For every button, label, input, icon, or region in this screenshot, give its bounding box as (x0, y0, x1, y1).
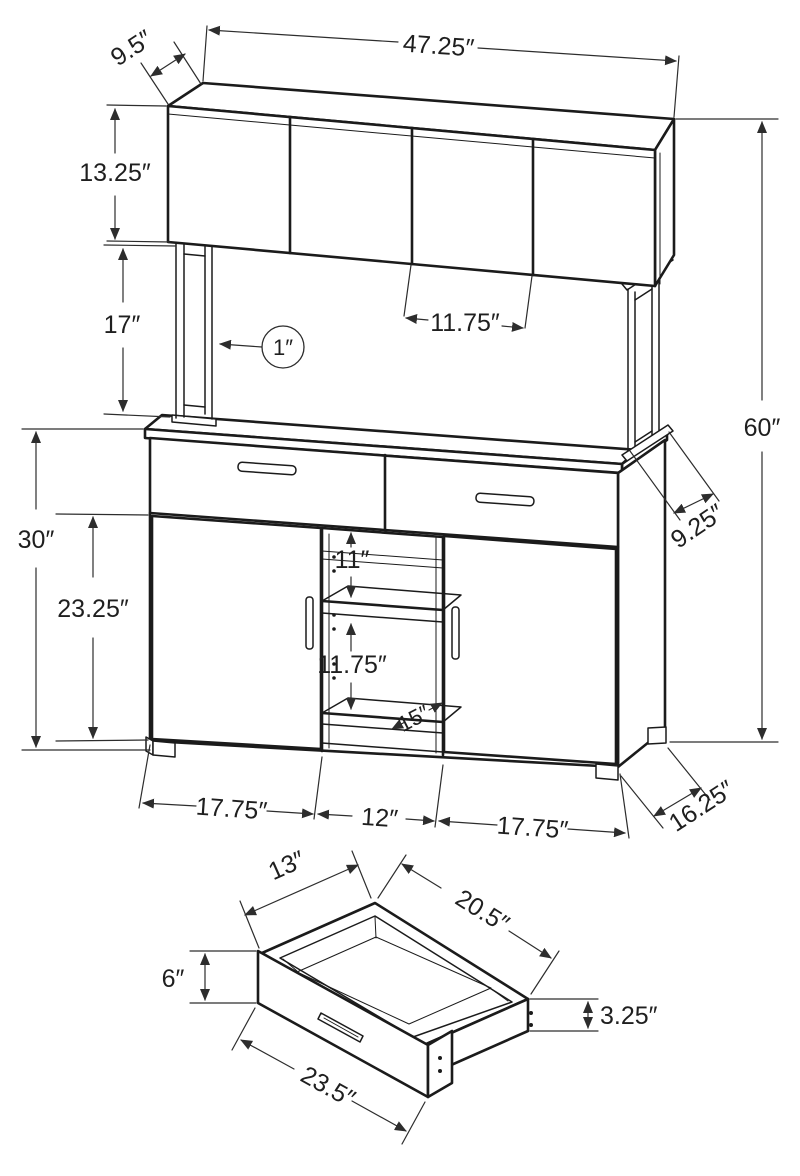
dim-drawer-box-height-label: 3.25″ (600, 1002, 658, 1030)
dim-drawer-front-width-label: 23.5″ (296, 1061, 360, 1113)
dim-base-depth: 16.25″ (621, 748, 739, 837)
dim-hutch-height: 13.25″ (79, 105, 170, 242)
furniture-dimension-diagram: 9.5″ 47.25″ 13.25″ 17″ (0, 0, 800, 1176)
dim-base-height-label: 30″ (18, 526, 55, 554)
dim-center-section-width-label: 12″ (360, 803, 399, 833)
left-riser-frame (172, 243, 216, 426)
dim-overall-width-label: 47.25″ (402, 30, 475, 63)
hutch (168, 83, 674, 286)
dim-right-section-width-label: 17.75″ (496, 812, 569, 845)
dim-overall-height-label: 60″ (744, 414, 781, 442)
dim-drawer-front-height-label: 6″ (162, 965, 185, 993)
dim-drawer-interior-width-label: 20.5″ (450, 884, 514, 938)
dim-door-height: 23.25″ (56, 514, 148, 741)
right-door-handle (452, 607, 459, 659)
dim-riser-depth-label: 9.25″ (666, 499, 729, 554)
dim-riser-height-label: 17″ (104, 311, 141, 339)
dim-door-height-label: 23.25″ (57, 595, 129, 623)
dim-drawer-interior-depth-label: 13″ (264, 845, 309, 886)
dim-riser-height: 17″ (104, 245, 176, 417)
dim-drawer-box-height: 3.25″ (530, 999, 658, 1031)
dim-hutch-height-label: 13.25″ (79, 159, 151, 187)
dim-hutch-depth: 9.5″ (106, 25, 201, 104)
hutch-side-panel (655, 119, 674, 286)
left-door-handle (306, 597, 313, 649)
diagram-canvas: 9.5″ 47.25″ 13.25″ 17″ (0, 0, 800, 1176)
dim-base-height: 30″ (18, 429, 150, 750)
dim-overall-height: 60″ (670, 119, 780, 742)
dim-left-section-width-label: 17.75″ (195, 793, 268, 826)
dim-frame-thickness-label: 1″ (273, 335, 293, 360)
dim-base-depth-label: 16.25″ (664, 775, 739, 837)
dim-upper-opening-height-label: 11″ (335, 546, 370, 574)
dim-hutch-depth-label: 9.5″ (106, 25, 158, 72)
dim-frame-thickness: 1″ (220, 326, 304, 368)
dim-drawer-front-height: 6″ (162, 951, 256, 1003)
dim-hutch-opening-width-label: 11.75″ (430, 309, 500, 337)
dim-lower-opening-height-label: 11.75″ (317, 651, 387, 679)
dim-hutch-opening-width: 11.75″ (404, 265, 532, 337)
